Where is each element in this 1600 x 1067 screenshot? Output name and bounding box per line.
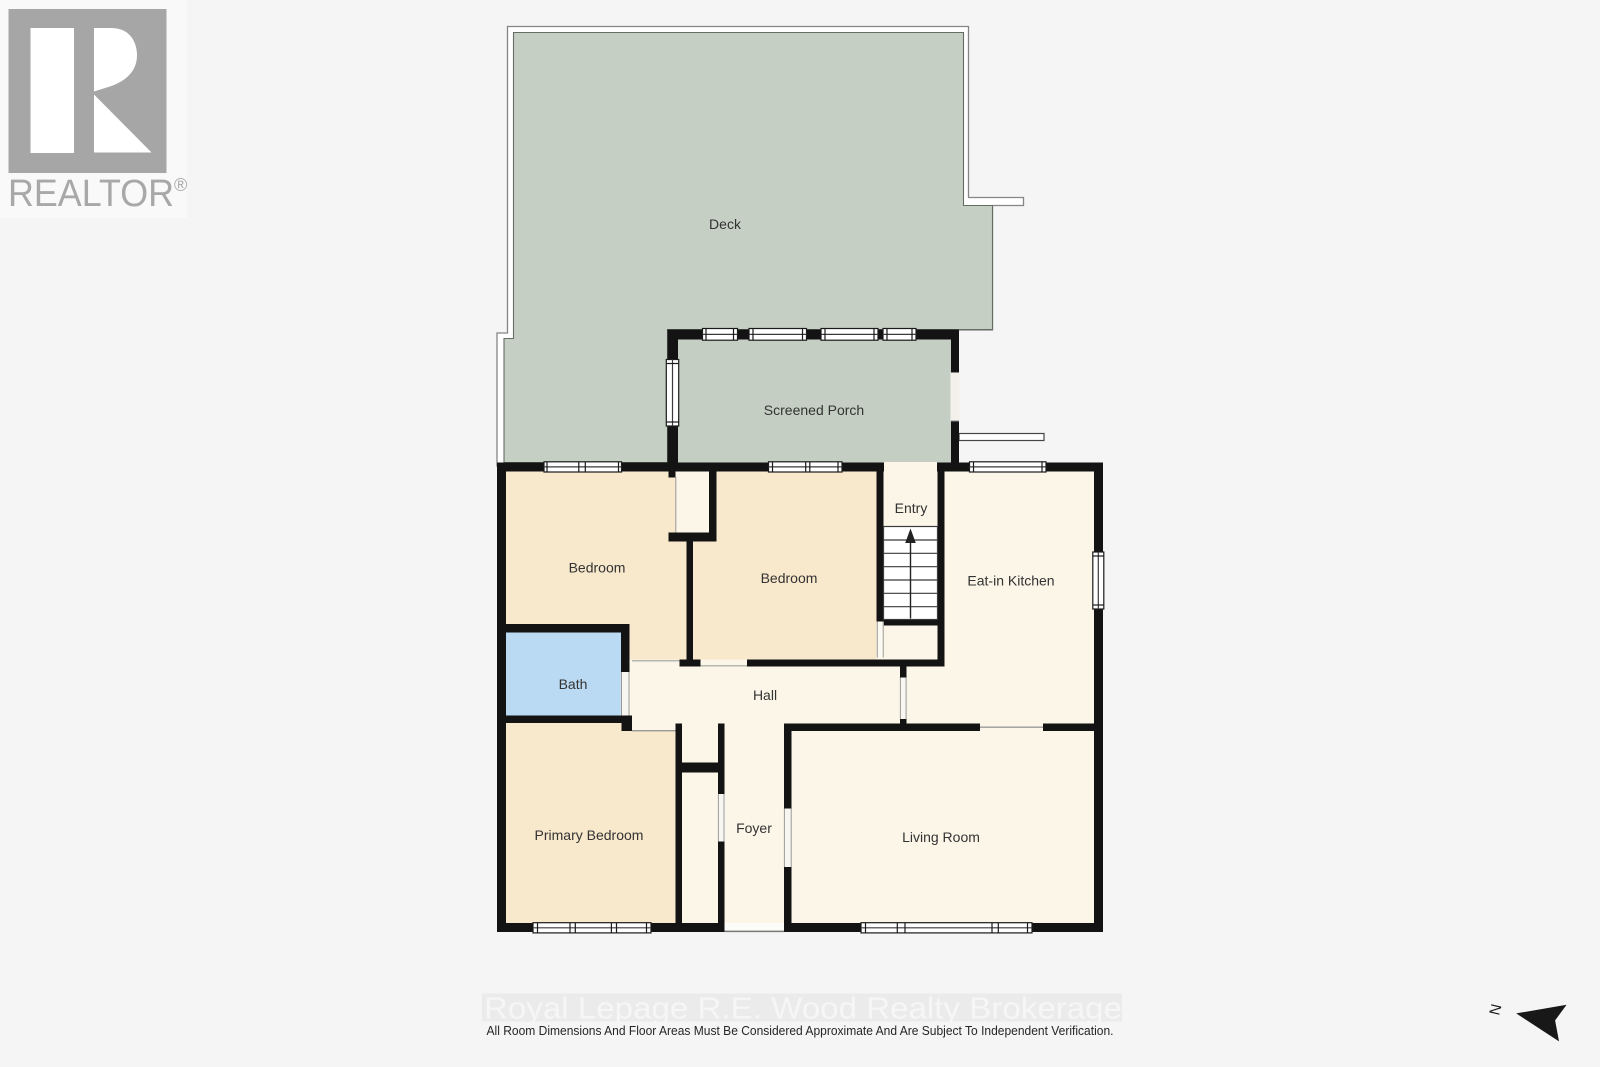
svg-text:Bedroom: Bedroom (569, 560, 626, 576)
svg-text:Eat-in Kitchen: Eat-in Kitchen (967, 573, 1054, 589)
svg-text:Royal Lepage R.E. Wood Realty: Royal Lepage R.E. Wood Realty Brokerage (484, 991, 1122, 1026)
svg-text:Primary Bedroom: Primary Bedroom (535, 827, 644, 843)
svg-text:Living Room: Living Room (902, 829, 980, 845)
svg-text:Hall: Hall (753, 687, 777, 703)
svg-text:Bath: Bath (559, 676, 588, 692)
svg-text:Screened Porch: Screened Porch (764, 402, 864, 418)
svg-text:REALTOR: REALTOR (8, 173, 174, 215)
svg-text:Entry: Entry (895, 500, 928, 516)
svg-text:Deck: Deck (709, 216, 742, 232)
svg-text:®: ® (174, 175, 187, 195)
svg-text:Foyer: Foyer (736, 820, 772, 836)
svg-text:All Room Dimensions And Floor: All Room Dimensions And Floor Areas Must… (487, 1024, 1114, 1038)
svg-text:Bedroom: Bedroom (761, 570, 818, 586)
